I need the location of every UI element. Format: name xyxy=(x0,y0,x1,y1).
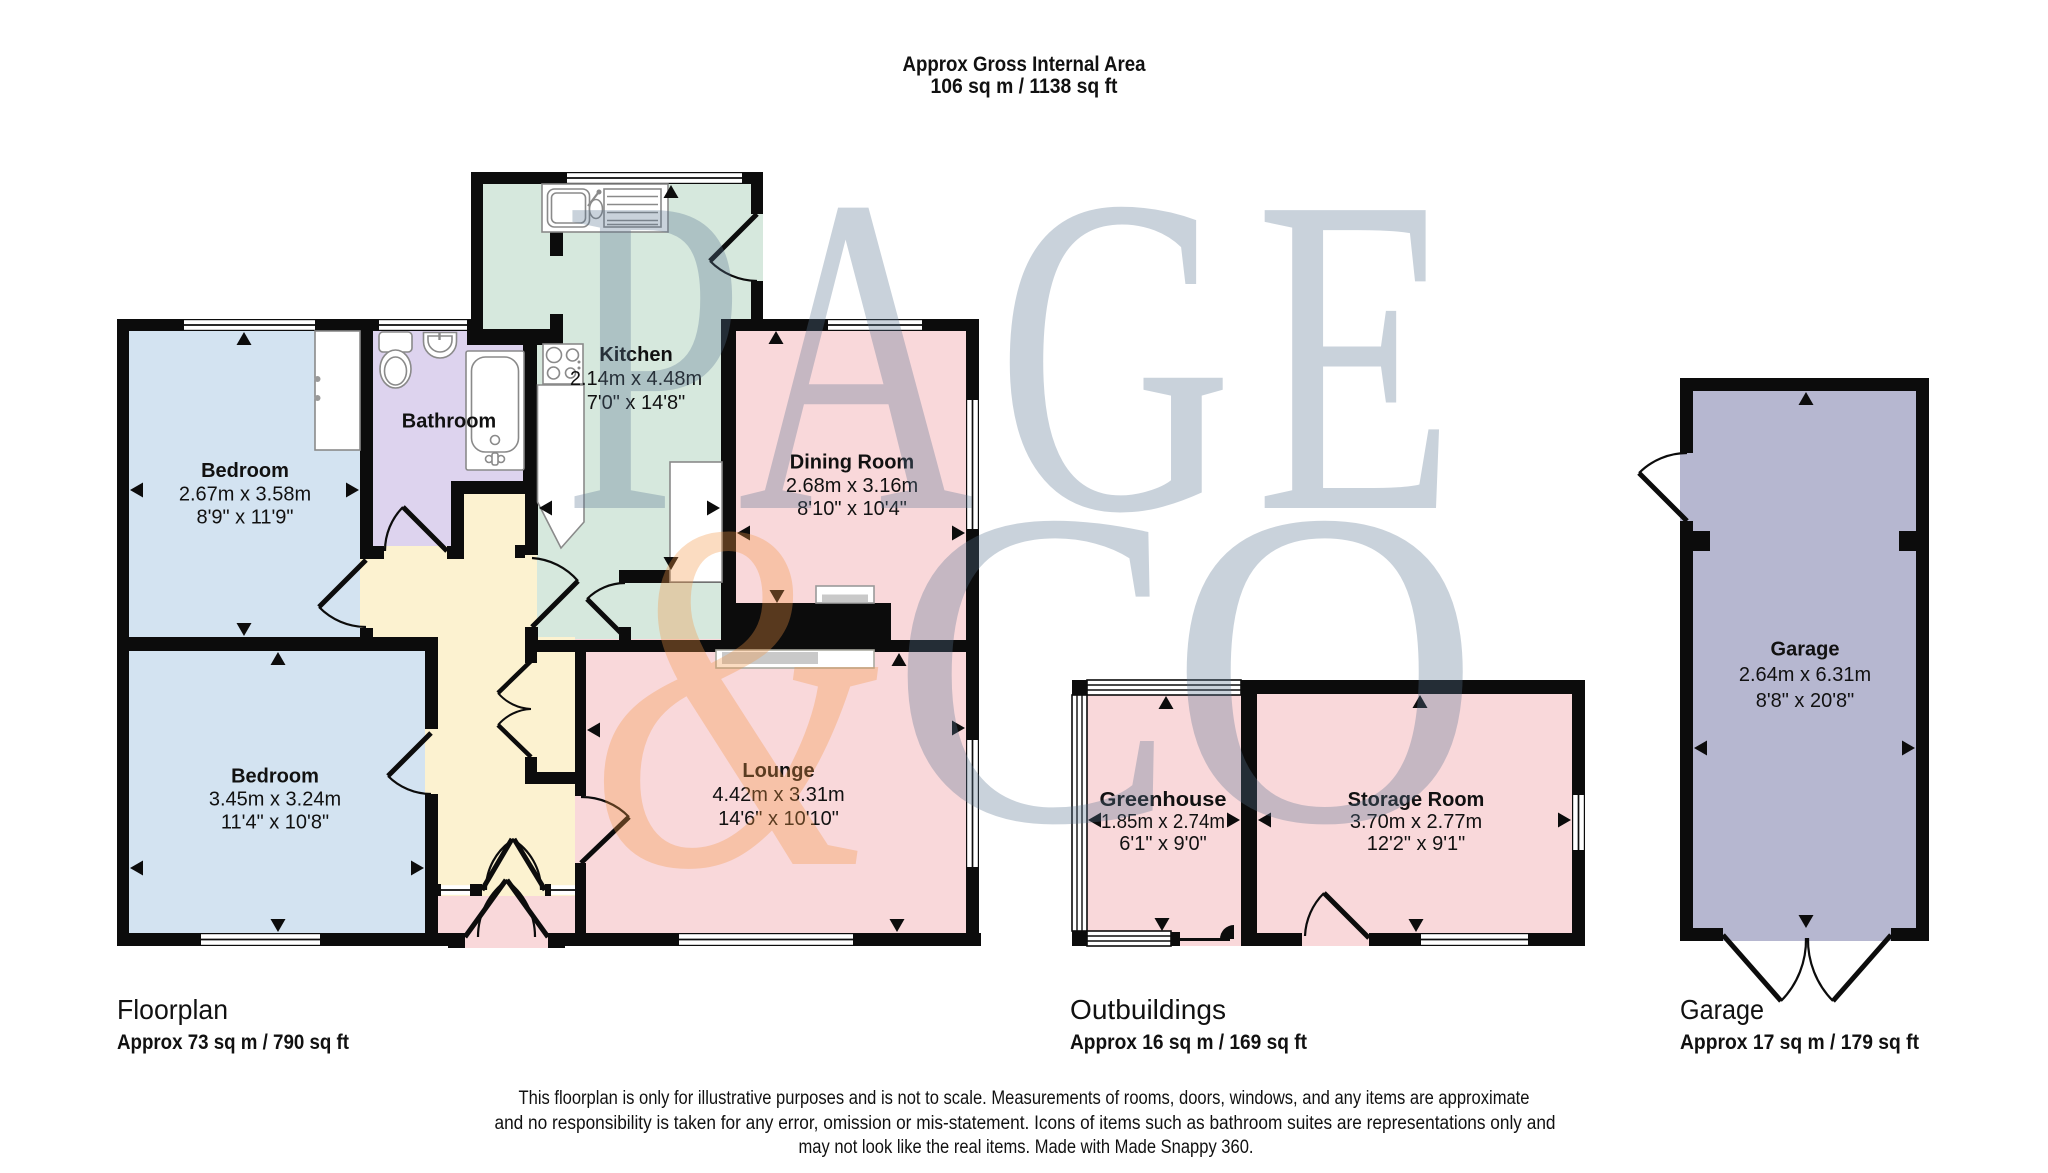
svg-text:8'8" x 20'8": 8'8" x 20'8" xyxy=(1756,690,1855,712)
svg-text:Bedroom: Bedroom xyxy=(201,460,289,482)
svg-text:Floorplan: Floorplan xyxy=(117,994,228,1025)
svg-text:Approx Gross Internal Area: Approx Gross Internal Area xyxy=(903,52,1147,76)
svg-text:2.64m x 6.31m: 2.64m x 6.31m xyxy=(1739,664,1871,686)
svg-text:8'9" x 11'9": 8'9" x 11'9" xyxy=(196,507,293,529)
svg-text:3.45m x 3.24m: 3.45m x 3.24m xyxy=(209,789,341,811)
svg-text:and no responsibility is taken: and no responsibility is taken for any e… xyxy=(495,1113,1556,1134)
svg-text:106 sq m / 1138 sq ft: 106 sq m / 1138 sq ft xyxy=(931,74,1118,98)
svg-text:Outbuildings: Outbuildings xyxy=(1070,994,1226,1025)
svg-text:Approx 17 sq m / 179 sq ft: Approx 17 sq m / 179 sq ft xyxy=(1680,1031,1919,1054)
svg-text:Approx 16 sq m / 169 sq ft: Approx 16 sq m / 169 sq ft xyxy=(1070,1031,1307,1054)
svg-text:CO: CO xyxy=(890,417,1472,918)
svg-text:2.67m x 3.58m: 2.67m x 3.58m xyxy=(179,484,311,506)
svg-text:Garage: Garage xyxy=(1680,994,1764,1025)
svg-text:&: & xyxy=(588,418,881,972)
svg-text:may not look like the real ite: may not look like the real items. Made w… xyxy=(799,1137,1254,1158)
svg-text:This floorplan is only for ill: This floorplan is only for illustrative … xyxy=(519,1088,1530,1109)
svg-text:Approx 73 sq m / 790 sq ft: Approx 73 sq m / 790 sq ft xyxy=(117,1031,349,1054)
svg-text:Garage: Garage xyxy=(1771,639,1840,661)
svg-text:11'4" x 10'8": 11'4" x 10'8" xyxy=(221,812,329,834)
svg-text:Bathroom: Bathroom xyxy=(402,411,496,433)
svg-text:Bedroom: Bedroom xyxy=(231,766,319,788)
